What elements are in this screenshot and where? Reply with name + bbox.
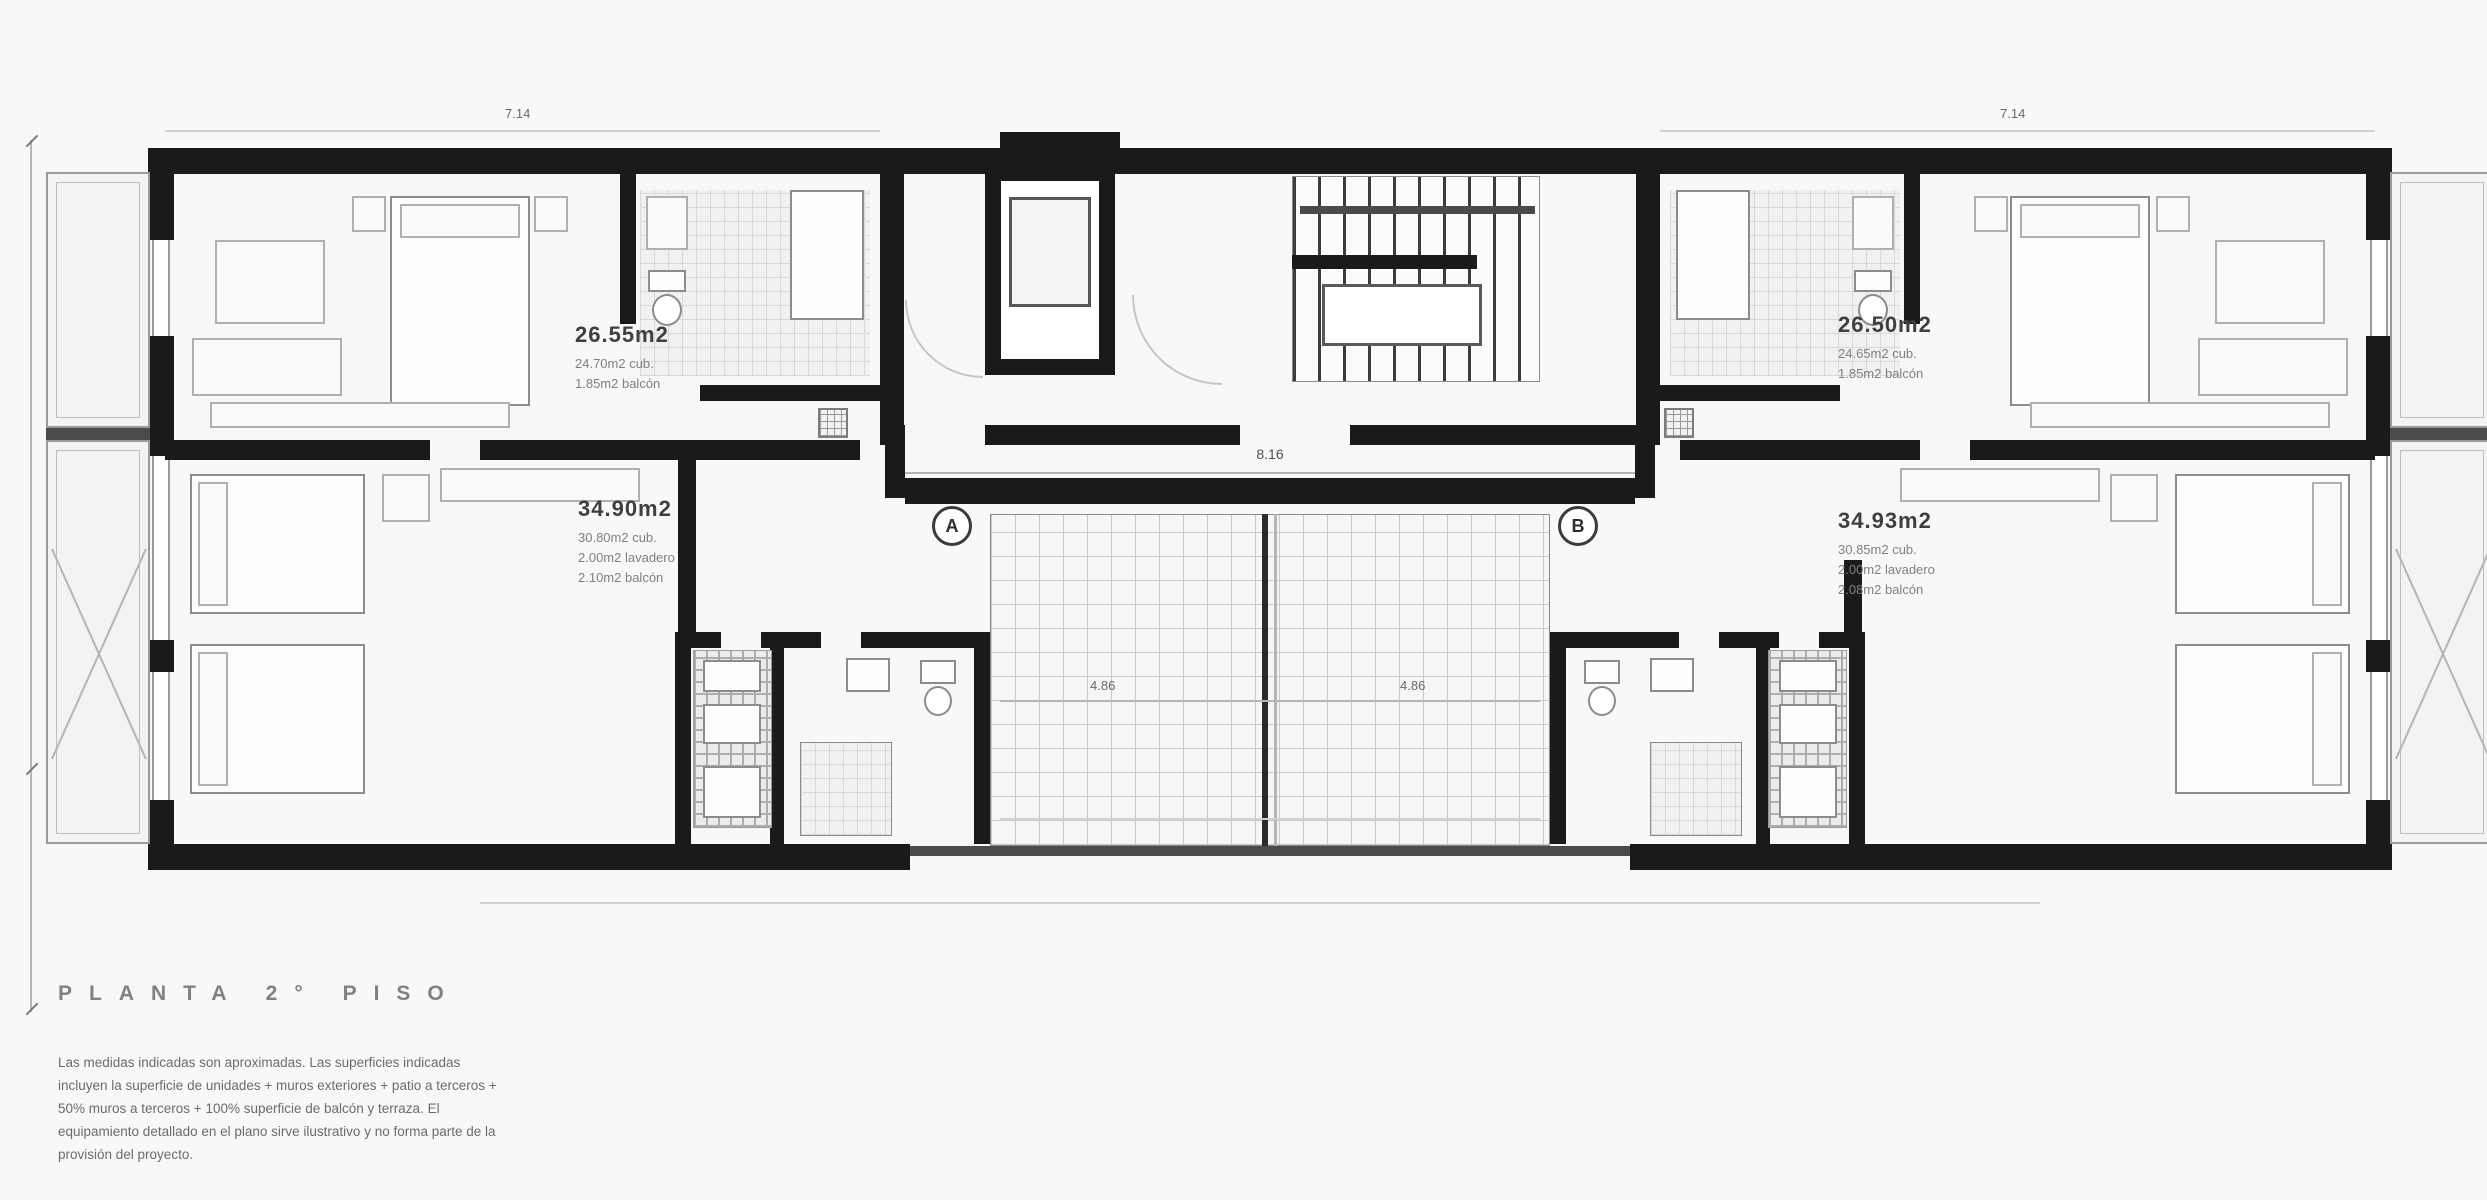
core-wall: [861, 632, 974, 648]
bathtub: [790, 190, 864, 320]
corridor-dimension: 8.16: [1230, 446, 1310, 462]
kitchen-sink: [1779, 660, 1837, 692]
nightstand: [382, 474, 430, 522]
stair-landing: [1292, 255, 1477, 269]
patio-dimension-left: 4.86: [1090, 678, 1115, 693]
patio: [990, 514, 1550, 846]
core-wall: [770, 648, 784, 844]
window: [152, 456, 170, 640]
wall-elevator-stub: [1000, 132, 1120, 148]
note-line: incluyen la superficie de unidades + mur…: [58, 1075, 718, 1098]
wall-mid: [1970, 440, 2375, 460]
table: [2215, 240, 2325, 324]
nightstand: [534, 196, 568, 232]
note-line: Las medidas indicadas son aproximadas. L…: [58, 1052, 718, 1075]
shower-floor: [800, 742, 892, 836]
bathroom-wall: [1904, 174, 1920, 324]
corridor-wall-top: [985, 425, 1240, 445]
unit-detail-line: 2.08m2 balcón: [1838, 580, 1935, 600]
bed-pillow: [2312, 652, 2342, 786]
dim-tick: [26, 1003, 39, 1016]
balcony-railing: [56, 450, 140, 834]
stair-handrail: [1322, 284, 1482, 346]
balcony-left-bottom: [46, 440, 150, 844]
patio-divider-line: [1274, 514, 1277, 846]
bed-pillow: [2312, 482, 2342, 606]
unit-detail-line: 30.80m2 cub.: [578, 528, 675, 548]
window: [152, 672, 170, 800]
plan-notes: Las medidas indicadas son aproximadas. L…: [58, 1052, 718, 1167]
balcony-divider: [2390, 428, 2487, 440]
kitchen-fridge: [703, 766, 761, 818]
dim-line-top-left: [165, 130, 880, 132]
core-wall: [974, 632, 990, 844]
nightstand: [1974, 196, 2008, 232]
elevator-car: [1009, 197, 1091, 307]
balcony-railing: [56, 182, 140, 418]
unit-detail-line: 24.65m2 cub.: [1838, 344, 1923, 364]
table: [215, 240, 325, 324]
unit-detail-label: 24.65m2 cub. 1.85m2 balcón: [1838, 344, 1923, 384]
unit-detail-line: 30.85m2 cub.: [1838, 540, 1935, 560]
corridor-dim-line: [905, 472, 1635, 474]
wall-bottom-left: [150, 844, 910, 870]
toilet: [1854, 270, 1892, 292]
wall-top: [150, 148, 2390, 174]
toilet: [920, 660, 956, 684]
wall-core-right: [1636, 148, 1660, 445]
door-swing-arc: [1132, 295, 1222, 385]
wall-segment: [148, 800, 174, 870]
bathroom-sink: [646, 196, 688, 250]
unit-detail-label: 24.70m2 cub. 1.85m2 balcón: [575, 354, 660, 394]
corridor-end-wall: [885, 425, 905, 498]
core-wall: [1566, 632, 1679, 648]
plan-title: PLANTA 2° PISO: [58, 982, 461, 1006]
kitchen-stove: [1779, 704, 1837, 744]
toilet-bowl: [924, 686, 952, 716]
patio-inner-line: [1000, 818, 1540, 820]
note-line: provisión del proyecto.: [58, 1144, 718, 1167]
core-wall: [1719, 632, 1779, 648]
bed-pillow: [2020, 204, 2140, 238]
bathroom-sink: [846, 658, 890, 692]
unit-detail-label: 30.85m2 cub. 2.00m2 lavadero 2.08m2 balc…: [1838, 540, 1935, 600]
note-line: 50% muros a terceros + 100% superficie d…: [58, 1098, 718, 1121]
wall-bottom-right: [1630, 844, 2390, 870]
wall-mid: [1680, 440, 1920, 460]
dim-line-top-right: [1660, 130, 2375, 132]
window: [2370, 456, 2388, 640]
vent-shaft-icon: [818, 408, 848, 438]
projection-line: [480, 902, 2040, 904]
kitchen-stove: [703, 704, 761, 744]
corridor-end-wall: [1635, 425, 1655, 498]
stair-landing-edge: [1300, 206, 1535, 214]
unit-detail-line: 24.70m2 cub.: [575, 354, 660, 374]
kitchen-sink: [703, 660, 761, 692]
unit-detail-line: 2.00m2 lavadero: [578, 548, 675, 568]
balcony-left-top: [46, 172, 150, 428]
unit-detail-line: 2.10m2 balcón: [578, 568, 675, 588]
nightstand: [2156, 196, 2190, 232]
wall-core-left: [880, 148, 904, 445]
door-swing-arc: [905, 300, 983, 378]
bed-pillow: [400, 204, 520, 238]
nightstand: [2110, 474, 2158, 522]
bathroom-wall: [1660, 385, 1840, 401]
wall-segment: [2366, 800, 2392, 870]
wall-segment: [2366, 148, 2392, 240]
patio-parapet: [910, 846, 1630, 856]
bathtub: [1676, 190, 1750, 320]
dresser: [2030, 402, 2330, 428]
unit-detail-line: 1.85m2 balcón: [1838, 364, 1923, 384]
dimension-top-right: 7.14: [2000, 106, 2025, 121]
wall-segment: [2366, 640, 2392, 672]
wall-segment: [148, 148, 174, 240]
closet: [1900, 468, 2100, 502]
sofa: [2198, 338, 2348, 396]
toilet: [1584, 660, 1620, 684]
core-wall: [1849, 632, 1865, 844]
dresser: [210, 402, 510, 428]
unit-area-label: 34.93m2: [1838, 508, 1932, 534]
unit-detail-label: 30.80m2 cub. 2.00m2 lavadero 2.10m2 balc…: [578, 528, 675, 588]
note-line: equipamiento detallado en el plano sirve…: [58, 1121, 718, 1144]
window: [2370, 672, 2388, 800]
balcony-right-top: [2390, 172, 2487, 428]
unit-area-label: 34.90m2: [578, 496, 672, 522]
section-marker-b-letter: B: [1572, 516, 1585, 537]
toilet: [648, 270, 686, 292]
core-wall: [1550, 632, 1566, 844]
patio-divider: [1262, 514, 1268, 846]
corridor-wall-bottom: [905, 478, 1635, 504]
nightstand: [352, 196, 386, 232]
bathroom-wall: [700, 385, 880, 401]
core-wall: [675, 632, 691, 844]
dim-line-left: [30, 140, 32, 1012]
toilet-bowl: [1588, 686, 1616, 716]
wall-segment: [148, 336, 174, 456]
patio-dim-line: [1000, 700, 1540, 702]
vent-shaft-icon: [1664, 408, 1694, 438]
wall-mid: [480, 440, 860, 460]
window: [2370, 240, 2388, 336]
unit-detail-line: 2.00m2 lavadero: [1838, 560, 1935, 580]
section-marker-a-letter: A: [946, 516, 959, 537]
balcony-divider: [46, 428, 150, 440]
balcony-railing: [2400, 182, 2484, 418]
unit-detail-line: 1.85m2 balcón: [575, 374, 660, 394]
bathroom-wall: [620, 174, 636, 324]
unit-area-label: 26.55m2: [575, 322, 669, 348]
shower-floor: [1650, 742, 1742, 836]
patio-dimension-right: 4.86: [1400, 678, 1425, 693]
dim-tick: [26, 135, 39, 148]
floor-plan-sheet: 8.16 4.86 4.86 26.: [0, 0, 2487, 1200]
wall-mid: [165, 440, 430, 460]
dimension-top-left: 7.14: [505, 106, 530, 121]
wall-segment: [2366, 336, 2392, 456]
dim-tick: [26, 763, 39, 776]
balcony-railing: [2400, 450, 2484, 834]
wall-segment: [148, 640, 174, 672]
bathroom-sink: [1852, 196, 1894, 250]
unit-area-label: 26.50m2: [1838, 312, 1932, 338]
closet-wall: [678, 460, 696, 638]
sofa: [192, 338, 342, 396]
window: [152, 240, 170, 336]
bed-pillow: [198, 482, 228, 606]
bathroom-sink: [1650, 658, 1694, 692]
section-marker-b: B: [1558, 506, 1598, 546]
bed-pillow: [198, 652, 228, 786]
core-wall: [761, 632, 821, 648]
section-marker-a: A: [932, 506, 972, 546]
corridor-wall-top: [1350, 425, 1635, 445]
kitchen-fridge: [1779, 766, 1837, 818]
